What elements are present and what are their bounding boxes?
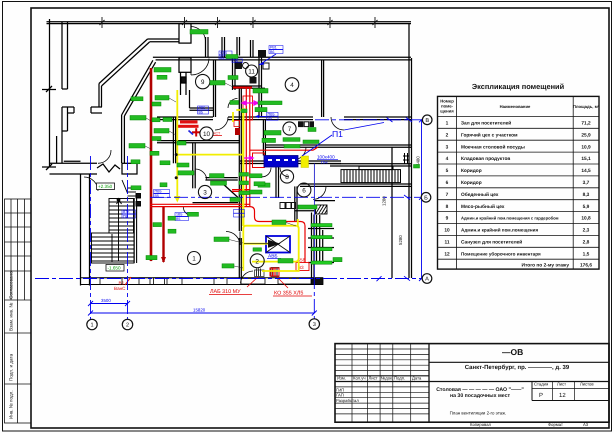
svg-text:25,9: 25,9 <box>581 132 591 138</box>
svg-text:Б: Б <box>424 196 428 202</box>
svg-text:Разработал: Разработал <box>336 398 359 403</box>
svg-text:Зал для посетителей: Зал для посетителей <box>461 121 511 127</box>
svg-text:1,5: 1,5 <box>583 251 590 257</box>
svg-text:Экспликация помещений: Экспликация помещений <box>472 82 565 91</box>
svg-text:План вентиляции 2-го этаж.: План вентиляции 2-го этаж. <box>450 411 507 416</box>
svg-text:10,9: 10,9 <box>581 144 591 150</box>
svg-text:+2.350: +2.350 <box>98 184 113 189</box>
svg-text:Админ.и крайний пом.помещения: Админ.и крайний пом.помещения <box>461 228 538 233</box>
svg-text:ПН: ПН <box>321 160 328 165</box>
svg-text:ПВ: ПВ <box>123 214 129 218</box>
svg-text:ПВ: ПВ <box>233 59 239 63</box>
svg-text:Формат: Формат <box>548 422 563 427</box>
svg-text:Дата: Дата <box>412 376 422 381</box>
svg-text:Инв. № подл.: Инв. № подл. <box>9 390 14 419</box>
svg-text:на 30 посадочных мест: на 30 посадочных мест <box>450 393 511 399</box>
svg-text:100x400: 100x400 <box>317 155 335 160</box>
svg-text:2: 2 <box>446 132 449 138</box>
svg-text:8: 8 <box>446 204 449 210</box>
svg-text:-1.650: -1.650 <box>108 266 121 271</box>
svg-text:В: В <box>425 118 429 124</box>
svg-text:В5: В5 <box>220 55 224 59</box>
svg-text:щения: щения <box>440 109 454 114</box>
svg-text:Копировал: Копировал <box>470 422 492 427</box>
svg-text:Кол.уч: Кол.уч <box>353 376 366 381</box>
svg-text:Листов: Листов <box>580 382 594 387</box>
svg-text:Лист: Лист <box>369 376 378 381</box>
svg-text:176,6: 176,6 <box>580 263 592 269</box>
svg-text:4: 4 <box>446 156 449 162</box>
svg-text:8,3: 8,3 <box>583 192 590 198</box>
svg-text:В5: В5 <box>199 110 203 114</box>
svg-text:4: 4 <box>290 82 294 89</box>
svg-text:В1: В1 <box>119 281 125 286</box>
svg-text:Лист: Лист <box>557 382 566 387</box>
svg-text:3500: 3500 <box>101 298 111 303</box>
svg-text:Изм.: Изм. <box>337 376 346 381</box>
svg-text:Подп. и дата: Подп. и дата <box>9 353 14 381</box>
svg-text:15820: 15820 <box>193 308 206 313</box>
svg-text:2: 2 <box>126 323 129 329</box>
svg-text:ВанС: ВанС <box>114 286 126 291</box>
svg-text:10: 10 <box>444 228 450 234</box>
svg-text:71,2: 71,2 <box>581 121 591 127</box>
svg-text:1: 1 <box>192 255 196 262</box>
svg-text:Согласовано: Согласовано <box>9 271 14 299</box>
svg-text:ГАП: ГАП <box>336 393 344 398</box>
svg-text:Обеденный цех: Обеденный цех <box>461 192 499 198</box>
svg-text:Р: Р <box>539 392 543 399</box>
svg-text:2: 2 <box>255 258 259 265</box>
svg-text:10,8: 10,8 <box>581 216 591 222</box>
svg-text:3: 3 <box>203 189 207 196</box>
svg-text:1: 1 <box>446 121 449 127</box>
svg-text:Взам. инв. №: Взам. инв. № <box>9 302 14 331</box>
svg-text:3: 3 <box>446 144 449 150</box>
svg-text:Коридор: Коридор <box>461 180 482 186</box>
svg-text:А: А <box>425 277 429 283</box>
svg-text:Наименование: Наименование <box>500 104 531 109</box>
svg-text:Санузел для посетителей: Санузел для посетителей <box>461 240 522 246</box>
svg-text:П1: П1 <box>332 129 343 139</box>
svg-text:12: 12 <box>444 251 450 257</box>
svg-text:Санкт-Петербург, пр. ————, д.: Санкт-Петербург, пр. ————, д. 39 <box>465 364 570 371</box>
svg-text:8: 8 <box>285 174 289 181</box>
svg-text:№док.: №док. <box>381 376 393 381</box>
svg-text:В5: В5 <box>155 194 159 198</box>
svg-text:1: 1 <box>90 323 93 329</box>
svg-text:2,8: 2,8 <box>583 240 590 246</box>
svg-text:А3: А3 <box>583 422 589 427</box>
svg-text:5280: 5280 <box>398 235 403 245</box>
svg-text:9: 9 <box>446 216 449 222</box>
svg-text:3,7: 3,7 <box>583 180 590 186</box>
svg-text:7: 7 <box>446 192 449 198</box>
svg-text:12: 12 <box>559 392 566 399</box>
svg-text:Стадия: Стадия <box>534 382 548 387</box>
svg-text:10: 10 <box>203 131 211 138</box>
svg-text:Мясо-рыбный цех: Мясо-рыбный цех <box>461 204 505 210</box>
svg-text:В6: В6 <box>270 50 274 54</box>
svg-text:Помещение уборочного инвентаря: Помещение уборочного инвентаря <box>461 251 541 256</box>
svg-text:Площадь, м²: Площадь, м² <box>573 104 600 109</box>
svg-text:ГИП: ГИП <box>336 387 344 392</box>
svg-text:В5: В5 <box>176 217 180 221</box>
svg-text:5: 5 <box>446 168 449 174</box>
svg-text:5,9: 5,9 <box>583 204 590 210</box>
svg-text:6: 6 <box>302 187 306 194</box>
svg-text:9: 9 <box>201 79 205 86</box>
svg-text:6: 6 <box>446 180 449 186</box>
svg-text:Подп.: Подп. <box>394 376 405 381</box>
svg-text:В5: В5 <box>268 117 272 121</box>
svg-text:11: 11 <box>444 240 449 246</box>
svg-text:15,1: 15,1 <box>581 156 591 162</box>
svg-text:—ОВ: —ОВ <box>502 347 523 357</box>
svg-text:Моечная столовой посуды: Моечная столовой посуды <box>461 144 525 150</box>
svg-text:КСТ: КСТ <box>214 132 222 136</box>
svg-text:Кладовая продуктов: Кладовая продуктов <box>461 156 510 162</box>
svg-text:14,5: 14,5 <box>581 168 591 174</box>
svg-text:Горячий цех с участком: Горячий цех с участком <box>461 132 518 138</box>
svg-text:11: 11 <box>248 68 255 75</box>
svg-text:1280: 1280 <box>382 196 387 206</box>
svg-text:3: 3 <box>313 322 316 328</box>
svg-text:2,3: 2,3 <box>583 228 590 234</box>
svg-text:Админ.и крайний пом.помещения: Админ.и крайний пом.помещения с гардероб… <box>461 216 559 221</box>
svg-text:Итого по 2-му этажу: Итого по 2-му этажу <box>522 263 570 269</box>
svg-text:7: 7 <box>288 126 292 133</box>
svg-text:Коридор: Коридор <box>461 168 482 174</box>
